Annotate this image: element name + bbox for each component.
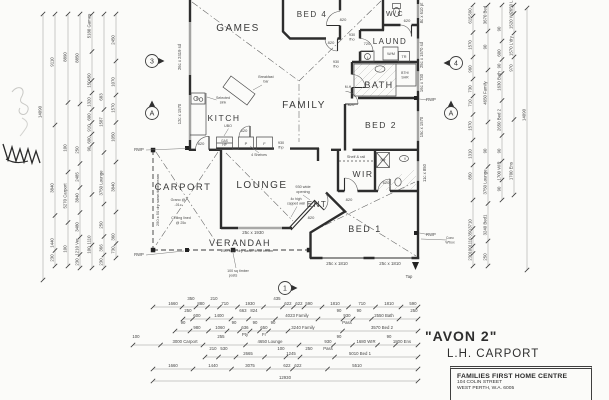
dimension-label: Pty [242, 332, 249, 337]
section-marker-arrow [448, 101, 454, 107]
plan-note: fho [333, 65, 338, 69]
plan-note: Grano @ [171, 198, 186, 202]
dimension-label: 1700 Ens [508, 162, 513, 180]
plan-note: 820 [348, 102, 355, 107]
room-label: VERANDAH [209, 238, 271, 248]
dimension-label: 90 [496, 63, 501, 68]
scan-scribbles [3, 88, 40, 163]
plan-note: 26c x 2419 sd [177, 43, 182, 70]
dimension-column: 14090 [521, 6, 529, 272]
dimension-label: 90 [232, 320, 237, 325]
plan-note: 620 [404, 18, 411, 23]
plan-note: UBO [224, 124, 232, 128]
plan-note: BTH/ [401, 71, 409, 75]
dimension-label: 1810 [384, 301, 394, 306]
tap-symbol [412, 262, 419, 270]
dimension-label: 230 [98, 258, 103, 266]
dimension-label: 250 [482, 253, 487, 261]
dimension-label: 3750 Lounge [482, 169, 487, 195]
plan-note: capped wall [287, 202, 305, 206]
dimension-label: 4650 Lounge [257, 339, 283, 344]
dimension-label: 14090 [521, 108, 526, 121]
plan-note: 620 [241, 128, 248, 133]
dimension-label: 250 [184, 308, 192, 313]
dimension-column: 5906151570960730710157013108503710350111… [467, 3, 475, 268]
dimension-label: 3670 Bed [482, 5, 487, 24]
dimension-label: 230 [467, 253, 472, 261]
dimension-label: 2485 [74, 172, 79, 182]
dimension-label: 366 [98, 244, 103, 252]
dimension-column: 88502502485384034801210 Ver230 [74, 12, 82, 270]
dimension-label: 90 [253, 320, 258, 325]
leader-lines [146, 85, 447, 268]
plan-note: sink [220, 101, 227, 105]
dimension-label: 3840 [74, 193, 79, 203]
dimension-row: 1003000 Carport2554650 Lounge930Pass9016… [131, 334, 420, 351]
dimension-column: 68315873750 Lounge250366230 [98, 12, 106, 270]
room-label: GAMES [216, 23, 260, 34]
dimension-label: 3750 Lounge [98, 170, 103, 196]
plan-note: HP [222, 143, 226, 147]
dimension-label: 5010 Bed 1 [349, 351, 372, 356]
room-label: W/C [386, 11, 404, 18]
dimension-column: 911038401440230 [49, 12, 57, 268]
pencil-mark [20, 118, 27, 136]
pencil-mark [12, 88, 28, 115]
section-marker: 1 [279, 282, 298, 295]
dimension-label: 90 [181, 320, 186, 325]
plan-note: 12c x 1570 [177, 103, 182, 124]
sink-bowl [199, 98, 203, 102]
dimension-label: 600 [86, 113, 91, 121]
plan-note: 820 [308, 215, 315, 220]
ens-toilet [395, 178, 401, 186]
dimension-label: 1930 [245, 301, 255, 306]
dimension-label: 100 [62, 144, 67, 152]
floor-plan-page: 1409091103840144023088901005270 Carport1… [0, 0, 609, 400]
dimension-label: 5270 Carport [62, 183, 67, 209]
dimension-label: 730 [110, 246, 115, 254]
dimension-label: 250 [98, 221, 103, 229]
dimension-label: 1070 [110, 77, 115, 87]
plan-note: RWP [134, 252, 144, 257]
plan-note: 4c high [291, 197, 302, 201]
dimension-label: 90 [496, 148, 501, 153]
dimension-label: 90 [387, 334, 392, 339]
section-marker-arrow [149, 101, 155, 107]
dimension-label: 90 [496, 26, 501, 31]
dimension-label: 90 [496, 186, 501, 191]
dimension-row: 1660144030756226225510 [151, 363, 420, 371]
dimension-label: 1310 [467, 149, 472, 159]
dimension-label: 622 [283, 363, 291, 368]
dimension-label: 683 [98, 93, 103, 101]
title-area: "AVON 2" L.H. CARPORT FAMILIES FIRST HOM… [425, 328, 605, 400]
dimension-label: 1110 [86, 235, 91, 245]
plan-note: 250 x 50 dry sawn timb beam [155, 173, 160, 226]
section-marker-label: 1 [283, 285, 287, 292]
room-label: WIR [352, 169, 373, 179]
room-label: CARPORT [155, 182, 212, 193]
dimension-label: 12930 [279, 375, 292, 380]
plan-note: 930 wide [295, 185, 310, 189]
dimension-label: 90 [357, 308, 362, 313]
dimension-label: 663 [239, 308, 247, 313]
dimension-label: 230 [49, 254, 54, 262]
section-marker: A [146, 101, 159, 120]
dimension-label: Pass [342, 320, 352, 325]
dimension-label: 3240 Bed1 [482, 214, 487, 235]
section-marker-label: A [150, 110, 155, 117]
dimension-label: 600 [496, 49, 501, 57]
dimension-label: 3840 [49, 183, 54, 193]
dimension-label: 1587 [98, 117, 103, 127]
dimension-label: 590 [305, 301, 313, 306]
dimension-label: 1680 WIR [356, 339, 375, 344]
dimension-label: 930 [324, 339, 332, 344]
dimension-chains: 1409091103840144023088901005270 Carport1… [37, 0, 529, 383]
plan-note: 820 [328, 40, 335, 45]
plan-note: Ceiling lined [171, 216, 191, 220]
section-marker: 3 [146, 55, 165, 68]
dimension-column: 14090 [37, 12, 45, 282]
dimension-label: 5510 [352, 363, 362, 368]
dimension-label: 9110 [49, 57, 54, 67]
plan-note: 11c x 850 [422, 163, 427, 182]
plan-note: 16c x 730 [419, 73, 424, 92]
room-label: KITCH [208, 113, 241, 123]
dimension-label: 2450 [110, 35, 115, 45]
dimension-label: 1570 [110, 103, 115, 113]
plan-note: TR [401, 55, 406, 59]
plan-note: 8c x 610 pt [419, 2, 424, 23]
dimension-label: 4650 Family [482, 80, 487, 104]
title-block: FAMILIES FIRST HOME CENTRE 104 COLIN STR… [450, 366, 592, 400]
dimension-row: 25060014006638244023 Family90930Pass9025… [181, 308, 420, 325]
plan-note: 820 [340, 17, 347, 22]
dimension-label: 1110 [467, 237, 472, 247]
plan-note: Tap [406, 274, 413, 279]
dimension-label: 930 [343, 313, 351, 318]
bath-vanity [375, 66, 385, 72]
builder-address-line2: WEST PERTH, W.A. 6005 [457, 386, 585, 392]
plan-note: Breakfast [258, 75, 273, 79]
room-label: LAUND [373, 37, 408, 46]
dimension-label: 150 [86, 80, 91, 88]
dimension-label: 3710 [467, 219, 472, 229]
plan-variant: L.H. CARPORT [447, 348, 605, 360]
dimension-label: 90 [482, 148, 487, 153]
rwp-pipe [414, 96, 418, 100]
section-marker-arrow [159, 58, 165, 64]
room-label: ENT [307, 200, 328, 209]
dimension-label: 1210 Ver [74, 238, 79, 256]
dimension-label: 250 [410, 308, 418, 313]
dimension-label: 1400 [214, 313, 224, 318]
room-label: BED 2 [365, 120, 397, 130]
dimension-label: 255 [217, 334, 225, 339]
plan-note: 15c x 1570 [419, 116, 424, 137]
dimension-label: 590 [409, 301, 417, 306]
dimension-label: 3480 [74, 222, 79, 232]
plan-note: 820 [198, 141, 205, 146]
dimension-label: 90 [86, 146, 91, 151]
dimension-label: 3240 Family [291, 325, 315, 330]
dimension-label: 530 [220, 346, 228, 351]
ceiling-line [313, 182, 416, 256]
dimension-label: 450 [86, 73, 91, 81]
plan-note: 100 sq timber [227, 269, 250, 273]
dimension-label: 90 [337, 308, 342, 313]
dimension-label: 90 [482, 44, 487, 49]
dimension-label: 100 [277, 346, 285, 351]
dimension-label: 250 [74, 146, 79, 154]
plan-note: RWP [426, 97, 436, 102]
plan-note: Shr [380, 158, 386, 162]
dimension-label: 910 [86, 124, 91, 132]
dimension-label: 250 [305, 346, 313, 351]
dimension-label: 4023 Family [285, 313, 309, 318]
dimension-label: 970 [508, 64, 513, 72]
breakfast-bar [223, 76, 255, 105]
dimension-label: 210 [209, 346, 217, 351]
dimension-label: 615 [467, 16, 472, 24]
plan-note: W/M [387, 52, 395, 56]
dimension-label: 435 [273, 296, 281, 301]
dimension-label: 100 [467, 246, 472, 254]
rwp-pipe [185, 248, 189, 252]
section-marker: 4 [444, 57, 463, 70]
dimension-label: 1050 [110, 132, 115, 142]
dimension-label: 1320 [86, 97, 91, 107]
dimension-column: 3670 Bed904650 Family903750 Lounge3240 B… [482, 3, 490, 268]
dimension-label: 230 [74, 258, 79, 266]
rwp-pipe [414, 231, 418, 235]
plan-note: Selected [216, 96, 230, 100]
plan-note: bar [263, 80, 269, 84]
dimension-label: 1660 [168, 363, 178, 368]
plan-note: @ 25c [176, 221, 187, 225]
dimension-label: 636 [241, 325, 249, 330]
dimension-column: 2650 L1520 WC1570 L'dry9701700 Ens [508, 0, 516, 197]
dimension-column: 88901005270 Carport100 [62, 12, 70, 268]
dimension-row: 12930 [151, 375, 420, 383]
plan-note: P [245, 141, 248, 146]
dimension-label: 960 [467, 65, 472, 73]
plan-labels: GAMESBED 4W/CLAUNDBATHBED 2FAMILYKITCHCA… [134, 2, 455, 279]
dimension-label: 1800 Ens [393, 339, 411, 344]
dimension-label: 360 [110, 233, 115, 241]
dimension-label: 1440 [49, 238, 54, 248]
dimension-label: 880 [197, 301, 205, 306]
dimension-label: 1630 Bath [496, 71, 501, 91]
dimension-label: 622 [295, 301, 303, 306]
dimension-label: 1570 [467, 121, 472, 131]
dimension-label: 590 [467, 8, 472, 16]
plan-note: 820 [346, 197, 353, 202]
dimension-label: 1700 WIR [496, 161, 501, 180]
dimension-label: 3570 Bed 2 [371, 325, 394, 330]
room-label: BED 1 [348, 224, 382, 234]
room-label: LOUNGE [236, 180, 287, 191]
dimension-label: 1440 [208, 363, 218, 368]
timber-post [151, 248, 156, 253]
dimension-label: 1570 L'dry [508, 35, 513, 56]
section-marker: A [445, 101, 458, 120]
plan-note: Shelf & rail [347, 155, 366, 159]
plan-note: fho [349, 38, 354, 42]
plan-note: RWP [134, 147, 144, 152]
dimension-label: 600 [86, 136, 91, 144]
dimension-label: 14090 [37, 105, 42, 118]
dimension-label: 350 [187, 296, 195, 301]
room-label: BATH [364, 80, 393, 90]
dimension-column: 5180 Games4501501320600910600901110100 [86, 12, 94, 270]
plan-note: 930 [333, 60, 339, 64]
dimension-label: 622 [294, 363, 302, 368]
plan-note: SHR [401, 76, 409, 80]
section-marker-arrow [292, 285, 298, 291]
plan-note: -01c [175, 203, 182, 207]
dimension-label: 824 [250, 308, 258, 313]
dimension-label: 980 [193, 325, 201, 330]
dimension-label: 3840 [110, 182, 115, 192]
dimension-label: 710 [221, 301, 229, 306]
section-marker-label: A [449, 110, 454, 117]
dimension-label: 210 [210, 296, 218, 301]
plan-note: 25c x 1810 [326, 261, 348, 266]
builder-name: FAMILIES FIRST HOME CENTRE [457, 373, 585, 380]
plan-note: 620 [383, 180, 390, 185]
dimension-label: 650 [260, 325, 268, 330]
plan-note: 4 Shelves [251, 153, 267, 157]
dimension-label: 710 [467, 99, 472, 107]
ceiling-line [156, 152, 218, 245]
dimension-label: 90 [337, 334, 342, 339]
dimension-column: 90600901630 Bath2650 Bed 2901700 WIR90 [496, 3, 504, 202]
plan-note: V [404, 157, 407, 161]
plan-note: M-H [345, 85, 352, 89]
plan-note: S [196, 97, 199, 101]
dimension-label: 100 [62, 245, 67, 253]
plan-note: 25c x 1570 sd [419, 41, 424, 68]
dimension-label: 850 [467, 172, 472, 180]
plan-note: 25c x 1930 [242, 230, 264, 235]
section-marker-label: 4 [454, 60, 458, 67]
dimension-label: Pass [323, 346, 333, 351]
dimension-label: 1570 [467, 40, 472, 50]
plan-note: fhp [278, 146, 283, 150]
dimension-row: 210530266510012452505010 Bed 1 [203, 346, 420, 359]
plan-note: opening [296, 190, 310, 194]
dimension-label: 2650 Bed 2 [496, 108, 501, 131]
dimension-label: 1810 [330, 301, 340, 306]
plan-note: 720 [364, 41, 371, 46]
dimension-label: 100 [86, 246, 91, 254]
plan-note: 250 x 50 dry sawn timb beam [221, 248, 274, 253]
dimension-label: 2550 Bath [374, 313, 394, 318]
dimension-label: 3075 [245, 363, 255, 368]
plan-note: 930 [349, 33, 355, 37]
dimension-column: 24501070157010503840360730 [110, 12, 118, 260]
room-label: BED 4 [297, 10, 328, 19]
dimension-label: 622 [284, 301, 292, 306]
leader [146, 85, 447, 268]
dimension-label: 100 [132, 334, 140, 339]
plan-title: "AVON 2" [425, 328, 605, 344]
plan-note: F [263, 141, 266, 146]
plan-note: posts [229, 274, 238, 278]
dimension-label: 600 [193, 313, 201, 318]
dimension-label: 350 [467, 229, 472, 237]
dimension-row: 90980106090636Pty90650Fr903240 Family357… [173, 320, 420, 337]
dimension-label: 2665 [243, 351, 253, 356]
plan-note: W'box [445, 241, 455, 245]
plan-note: 25c x 1810 [379, 261, 401, 266]
dimension-label: 1060 [215, 325, 225, 330]
section-marker-label: 3 [150, 58, 154, 65]
dimension-label: 710 [358, 301, 366, 306]
dimension-label: 5180 Games [86, 14, 91, 39]
dimension-label: 1660 [168, 301, 178, 306]
dimension-label: 1520 WC [508, 11, 513, 29]
dimension-label: 8890 [62, 52, 67, 62]
dimension-label: Fr [262, 332, 267, 337]
dimension-label: 1245 [286, 351, 296, 356]
plan-note: 930 [278, 141, 284, 145]
dimension-label: 90 [271, 320, 276, 325]
dimension-label: 3000 Carport [172, 339, 198, 344]
plan-note: RWP [426, 232, 436, 237]
plan-note: Conc [446, 236, 454, 240]
timber-post [151, 148, 156, 153]
dimension-label: 730 [467, 85, 472, 93]
plan-note: L [367, 56, 369, 60]
section-marker-arrow [444, 60, 450, 66]
dimension-label: 8850 [74, 53, 79, 63]
rwp-pipe [185, 146, 189, 150]
room-label: FAMILY [282, 100, 326, 111]
